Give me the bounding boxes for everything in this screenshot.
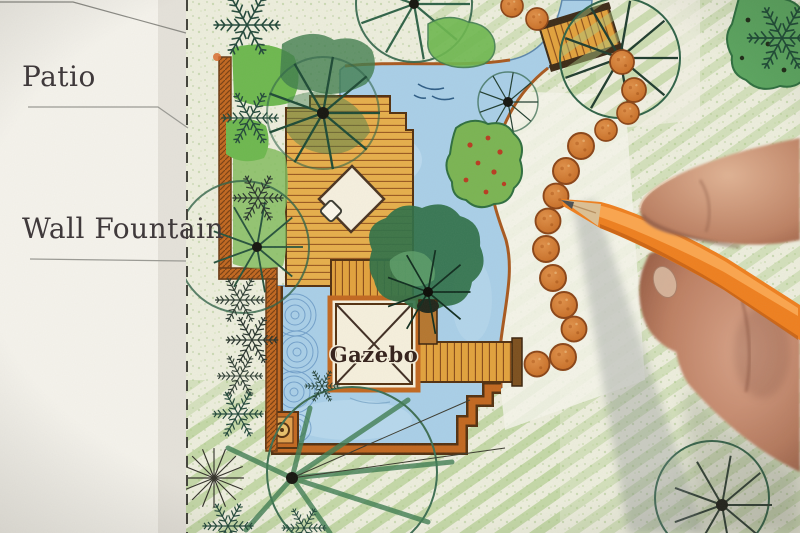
vignette xyxy=(0,0,800,533)
landscape-plan-photo: Gazebo xyxy=(0,0,800,533)
